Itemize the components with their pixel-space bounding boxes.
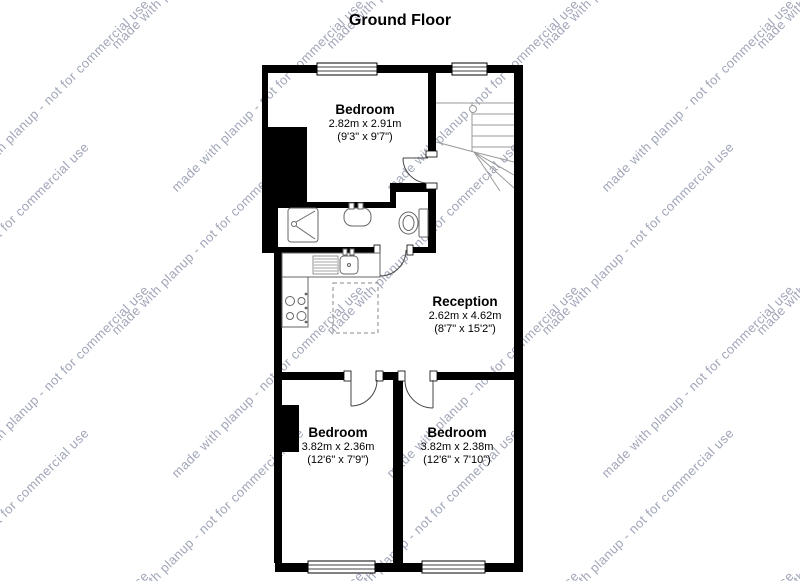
doorframe-bedroom-right <box>398 371 405 381</box>
shower-icon <box>288 208 318 242</box>
wall-bedroom-divider <box>393 380 403 563</box>
wall-bathroom-left <box>262 202 278 253</box>
bathroom-fixtures <box>288 203 428 242</box>
wall-reception-south-c <box>433 372 514 380</box>
door-arc-bedroom-top <box>403 158 428 183</box>
kitchen-island-dashed <box>333 283 378 333</box>
room-dimensions-imperial: (8'7" x 15'2") <box>390 323 540 336</box>
room-dimensions-metric: 2.82m x 2.91m <box>290 117 440 131</box>
wall-bathroom-north-west <box>262 202 390 208</box>
room-name: Bedroom <box>382 425 532 440</box>
doorframe-bedroom-left <box>344 371 351 381</box>
window-top-left-icon <box>317 63 377 75</box>
floorplan-canvas: made with planup - not for commercial us… <box>0 0 800 581</box>
drainer-icon <box>313 256 338 274</box>
room-dimensions-metric: 2.62m x 4.62m <box>390 309 540 323</box>
room-dimensions-imperial: (9'3" x 9'7") <box>290 131 440 144</box>
hob-icon <box>282 277 308 327</box>
doorframe-bathroom <box>407 245 413 255</box>
wall-left-upper <box>262 65 268 127</box>
door-arc-bedroom-left <box>351 380 377 406</box>
room-name: Reception <box>390 294 540 309</box>
window-bottom-right-icon <box>422 561 485 573</box>
door-arc-bedroom-right <box>405 380 433 408</box>
room-dimensions-imperial: (12'6" x 7'10") <box>382 454 532 467</box>
room-label-reception: Reception 2.62m x 4.62m (8'7" x 15'2") <box>390 294 540 336</box>
room-dimensions-metric: 3.82m x 2.38m <box>382 440 532 454</box>
doorframe-bedroom-top <box>426 183 437 189</box>
page-title: Ground Floor <box>0 12 800 30</box>
wall-jog-connector <box>390 183 396 208</box>
room-name: Bedroom <box>290 102 440 117</box>
toilet-icon <box>399 209 428 237</box>
floorplan-drawing <box>0 0 800 581</box>
wall-reception-south-a <box>282 372 350 380</box>
door-arc-bathroom <box>380 250 406 276</box>
doorframe-bedroom-right <box>430 371 437 381</box>
wall-bathroom-east <box>428 192 436 253</box>
room-label-bedroom-right: Bedroom 3.82m x 2.38m (12'6" x 7'10") <box>382 425 532 467</box>
doorframe-bedroom-top <box>426 151 437 157</box>
window-bottom-left-icon <box>308 561 375 573</box>
wall-bathroom-south-west <box>274 247 380 253</box>
staircase-icon <box>436 103 514 191</box>
kitchen-fixtures <box>282 249 380 333</box>
window-top-right-icon <box>452 63 487 75</box>
room-label-bedroom-top: Bedroom 2.82m x 2.91m (9'3" x 9'7") <box>290 102 440 144</box>
wall-left-lower <box>274 253 282 563</box>
doorframe-bedroom-left <box>376 371 383 381</box>
